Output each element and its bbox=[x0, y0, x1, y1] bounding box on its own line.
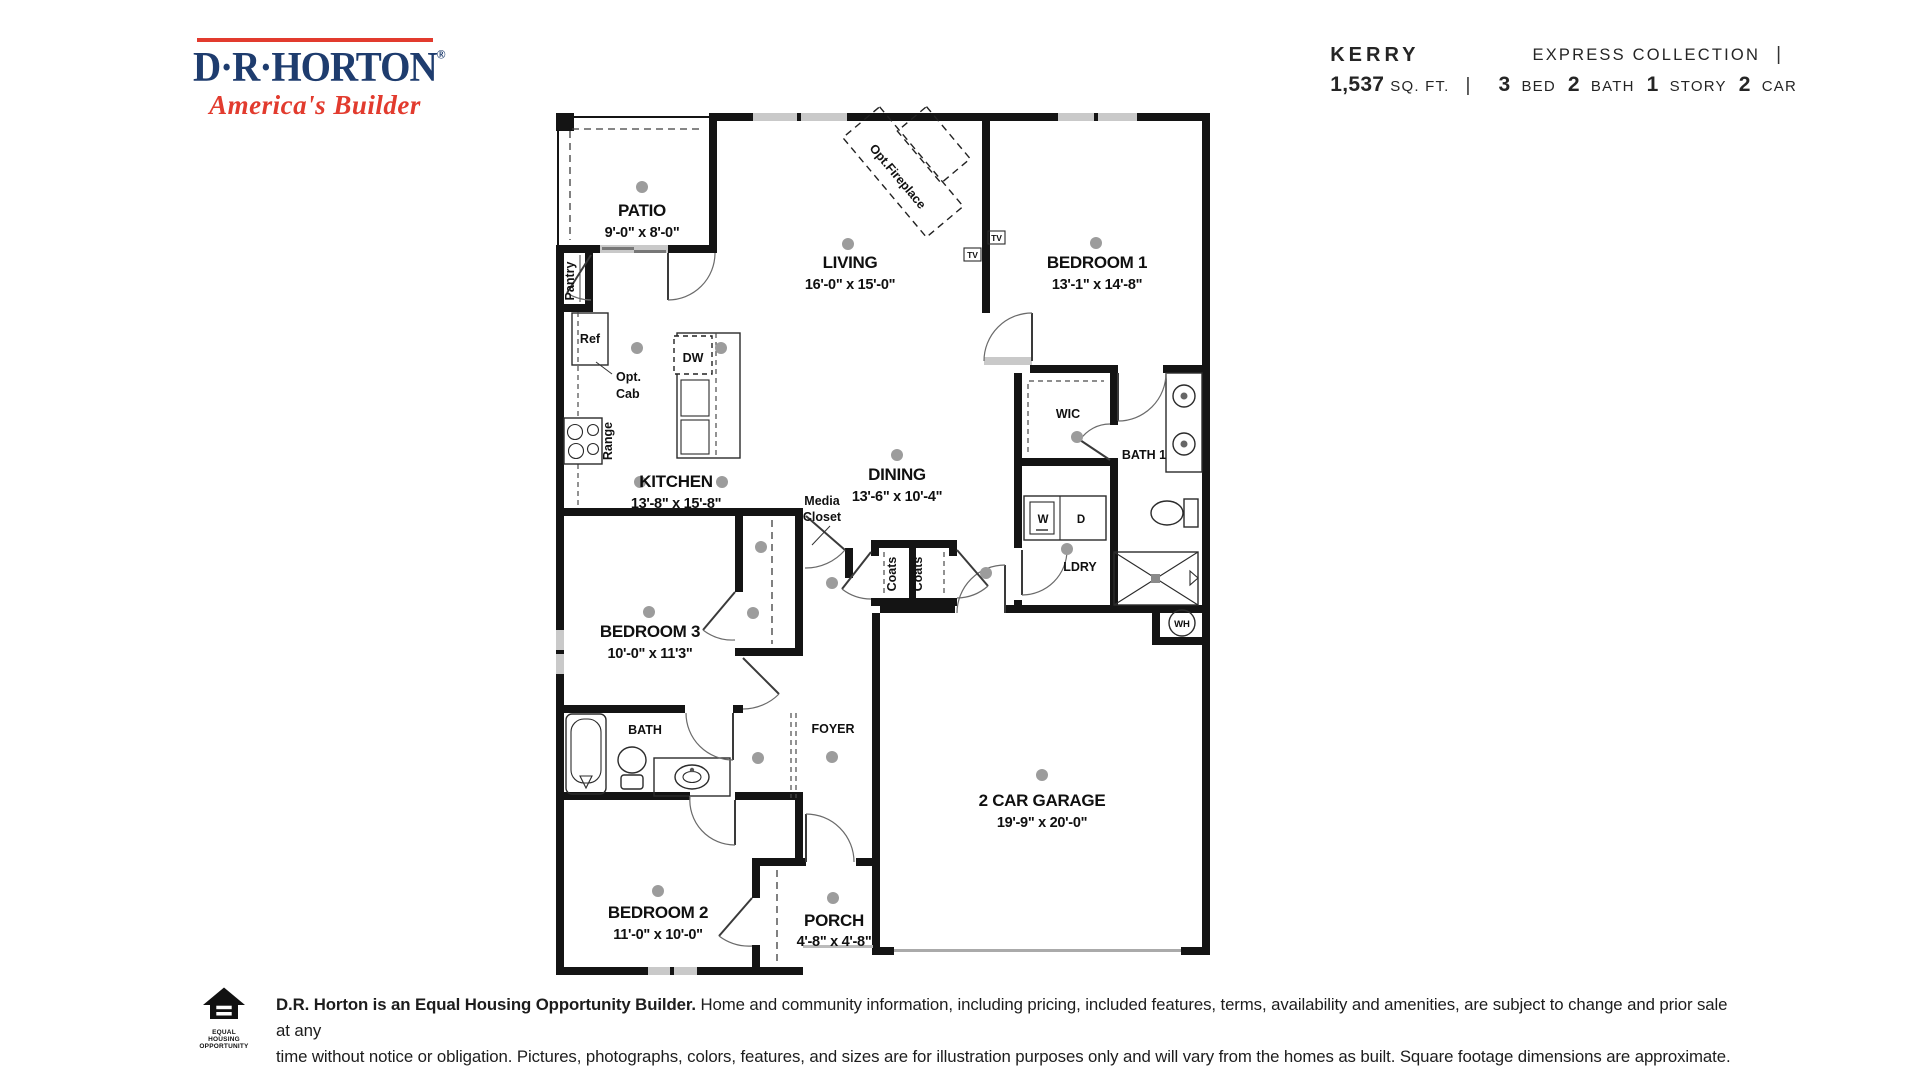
room-dims-garage: 19'-9" x 20'-0" bbox=[997, 815, 1087, 831]
opt-fireplace: Opt.Fireplace bbox=[843, 84, 991, 238]
floor-plan: Opt.Fireplace bbox=[0, 0, 1920, 1080]
disclaimer-line-2: time without notice or obligation. Pictu… bbox=[276, 1044, 1741, 1070]
bath1-label: BATH 1 bbox=[1122, 448, 1166, 462]
ref-label: Ref bbox=[580, 332, 601, 346]
room-dims-kitchen: 13'-8" x 15'-8" bbox=[631, 496, 721, 512]
doors bbox=[567, 253, 1166, 946]
room-dims-bedroom2: 11'-0" x 10'-0" bbox=[613, 927, 703, 943]
opt-cab-label-2: Cab bbox=[616, 387, 640, 401]
dw-label: DW bbox=[683, 351, 704, 365]
eho-text-2: OPPORTUNITY bbox=[196, 1043, 252, 1050]
coats-label-1: Coats bbox=[885, 557, 899, 592]
wh-label: WH bbox=[1174, 619, 1190, 630]
media-closet-label-2: Closet bbox=[803, 510, 842, 524]
room-label-bedroom3: BEDROOM 3 bbox=[600, 622, 700, 641]
media-closet-label-1: Media bbox=[804, 494, 840, 508]
tv-label-living: TV bbox=[967, 250, 978, 260]
room-dims-dining: 13'-6" x 10'-4" bbox=[852, 489, 942, 505]
room-label-bedroom1: BEDROOM 1 bbox=[1047, 253, 1147, 272]
coats-label-2: Coats bbox=[911, 557, 925, 592]
room-dims-patio: 9'-0" x 8'-0" bbox=[605, 225, 680, 241]
walls bbox=[556, 113, 1210, 975]
wic-label: WIC bbox=[1056, 407, 1080, 421]
opt-cab-label-1: Opt. bbox=[616, 370, 641, 384]
disclaimer-bold: D.R. Horton is an Equal Housing Opportun… bbox=[276, 995, 696, 1014]
room-label-kitchen: KITCHEN bbox=[639, 472, 712, 491]
tv-label-bedroom1: TV bbox=[991, 233, 1002, 243]
room-dims-porch: 4'-8" x 4'-8" bbox=[797, 934, 872, 950]
foyer-label: FOYER bbox=[811, 722, 854, 736]
room-dims-bedroom3: 10'-0" x 11'3" bbox=[608, 646, 693, 662]
room-label-porch: PORCH bbox=[804, 911, 864, 930]
room-label-living: LIVING bbox=[823, 253, 878, 272]
room-label-dining: DINING bbox=[868, 465, 926, 484]
room-label-bedroom2: BEDROOM 2 bbox=[608, 903, 708, 922]
equal-housing-logo: EQUAL HOUSING OPPORTUNITY bbox=[196, 986, 252, 1050]
room-dims-living: 16'-0" x 15'-0" bbox=[805, 277, 895, 293]
room-label-patio: PATIO bbox=[618, 201, 666, 220]
ldry-label: LDRY bbox=[1063, 560, 1097, 574]
dryer-label: D bbox=[1077, 514, 1085, 526]
bath-label: BATH bbox=[628, 723, 662, 737]
eho-text-1: EQUAL HOUSING bbox=[196, 1029, 252, 1043]
room-dims-bedroom1: 13'-1" x 14'-8" bbox=[1052, 277, 1142, 293]
washer-label: W bbox=[1038, 514, 1049, 526]
pantry-label: Pantry bbox=[563, 262, 577, 301]
room-label-garage: 2 CAR GARAGE bbox=[979, 791, 1106, 810]
equal-housing-house-icon bbox=[203, 986, 245, 1024]
disclaimer: D.R. Horton is an Equal Housing Opportun… bbox=[276, 992, 1741, 1070]
disclaimer-line-1: D.R. Horton is an Equal Housing Opportun… bbox=[276, 992, 1741, 1044]
range-label: Range bbox=[601, 422, 615, 460]
